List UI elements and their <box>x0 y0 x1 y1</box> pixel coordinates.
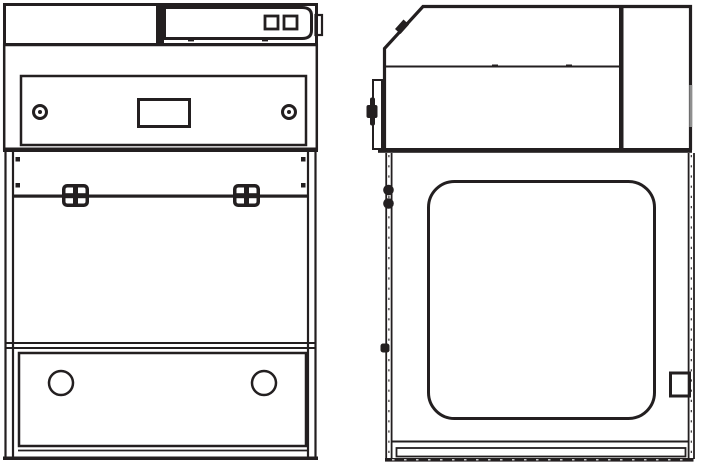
knob-right-dot <box>287 110 291 114</box>
side-head-bottom-bar <box>378 148 692 153</box>
panel-screw-bottom-left <box>188 38 194 41</box>
port-hole-right <box>252 371 276 395</box>
sash-clamp-left-cross-h <box>62 193 89 198</box>
front-elevation-view <box>3 4 322 461</box>
side-elevation-view <box>367 5 695 462</box>
sash-clamp-right <box>233 184 260 207</box>
port-hole-left <box>49 371 73 395</box>
drawing-canvas <box>0 0 703 468</box>
front-access-panel <box>21 76 306 145</box>
slant-hinge-bump <box>395 20 409 35</box>
head-bottom-bar <box>3 148 318 153</box>
knob-left-dot <box>38 110 42 114</box>
base-panel <box>19 353 306 446</box>
latch-pin <box>370 98 375 126</box>
base-strip <box>397 448 686 457</box>
panel-screw-top-right <box>265 4 271 7</box>
front-bottom-bar <box>3 457 318 461</box>
rear-column-divider <box>619 5 624 150</box>
panel-side-tab <box>316 15 323 35</box>
head-outline <box>385 7 691 151</box>
post-screw-left-upper <box>16 157 21 162</box>
track-stop <box>381 344 390 353</box>
panel-screw-top-left <box>188 4 194 7</box>
post-screw-right-upper <box>301 157 306 162</box>
display-cutout <box>139 100 190 127</box>
post-screw-right-lower <box>301 183 306 188</box>
sash-rail <box>13 195 308 198</box>
post-screw-left-lower <box>16 183 21 188</box>
panel-screw-bottom-right <box>262 38 268 41</box>
hinge-pin-upper <box>383 185 394 196</box>
rear-edge-mark <box>689 85 692 127</box>
side-bottom-bar <box>385 458 694 462</box>
head-housing <box>4 45 317 149</box>
sash-clamp-left <box>62 184 89 207</box>
split-tick-right <box>566 65 572 68</box>
hinge-pin-lower <box>383 198 394 209</box>
technical-drawing <box>0 0 703 468</box>
panel-button-right <box>284 16 297 29</box>
rear-handle <box>671 373 690 396</box>
control-panel-divider <box>156 4 164 45</box>
side-window <box>429 182 655 419</box>
panel-button-left <box>265 16 278 29</box>
control-panel <box>165 8 312 39</box>
split-tick-left <box>492 65 498 68</box>
sash-clamp-right-cross-h <box>233 193 260 198</box>
